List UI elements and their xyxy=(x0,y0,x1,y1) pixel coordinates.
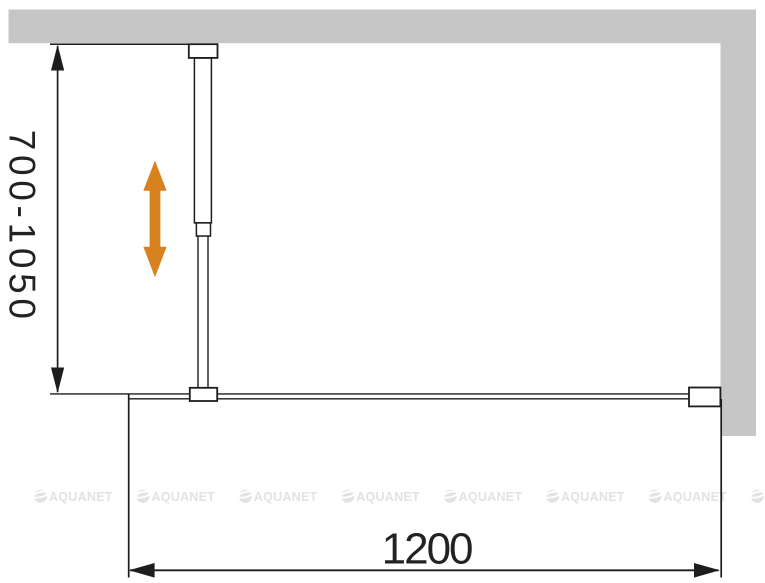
svg-text:1200: 1200 xyxy=(382,524,472,573)
svg-text:AQUANET: AQUANET xyxy=(561,490,625,504)
svg-text:AQUANET: AQUANET xyxy=(151,490,215,504)
svg-text:AQUANET: AQUANET xyxy=(356,490,420,504)
svg-text:AQUANET: AQUANET xyxy=(254,490,318,504)
svg-text:700-1050: 700-1050 xyxy=(2,130,43,324)
svg-text:AQUANET: AQUANET xyxy=(49,490,113,504)
svg-text:AQUANET: AQUANET xyxy=(459,490,523,504)
svg-text:AQUANET: AQUANET xyxy=(663,490,727,504)
